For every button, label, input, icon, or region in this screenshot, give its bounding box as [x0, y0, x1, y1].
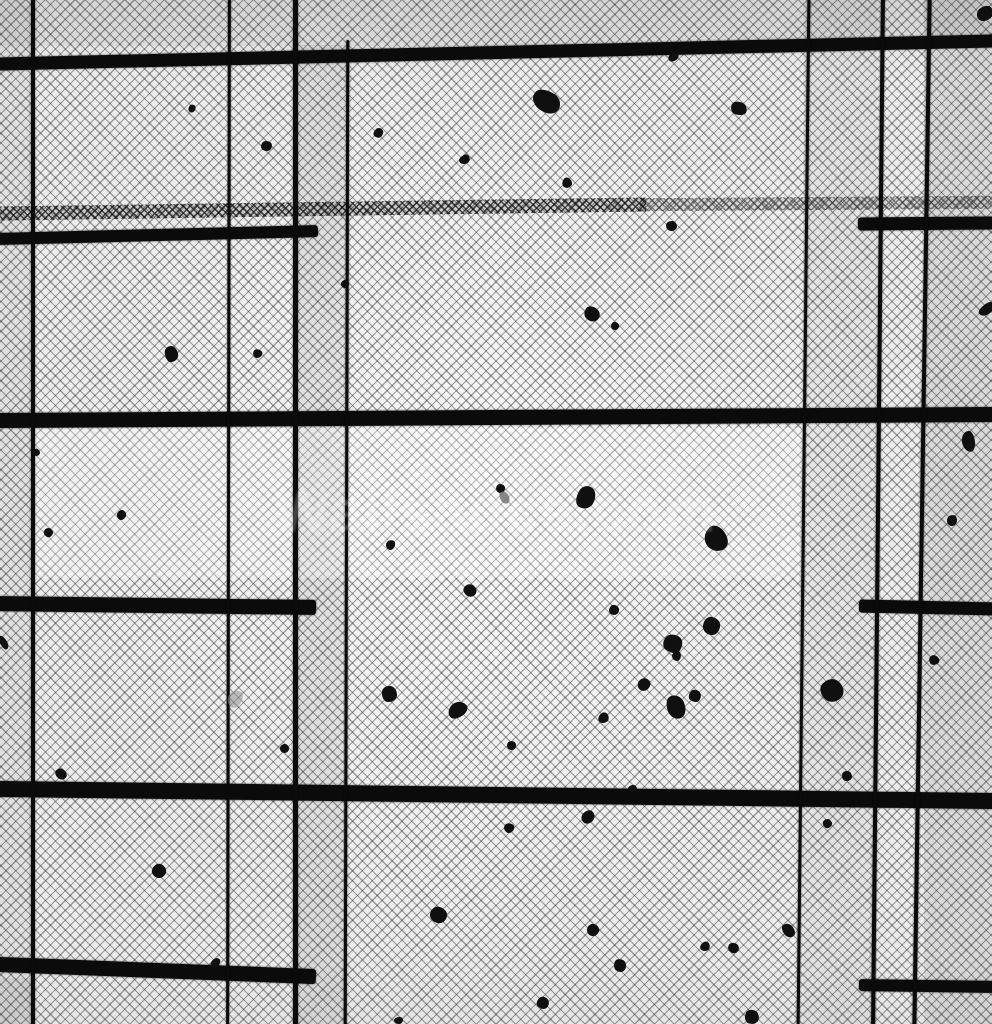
mesh-photo: Wallsauce.com — [0, 0, 992, 1024]
debris-spot — [394, 1017, 403, 1024]
frame-bar-horizontal — [859, 979, 992, 993]
watermark-text: Wallsauce.com — [275, 479, 718, 546]
frame-bar-vertical — [31, 0, 35, 1024]
mesh-seam-segment — [640, 196, 992, 211]
debris-spot — [611, 322, 619, 330]
